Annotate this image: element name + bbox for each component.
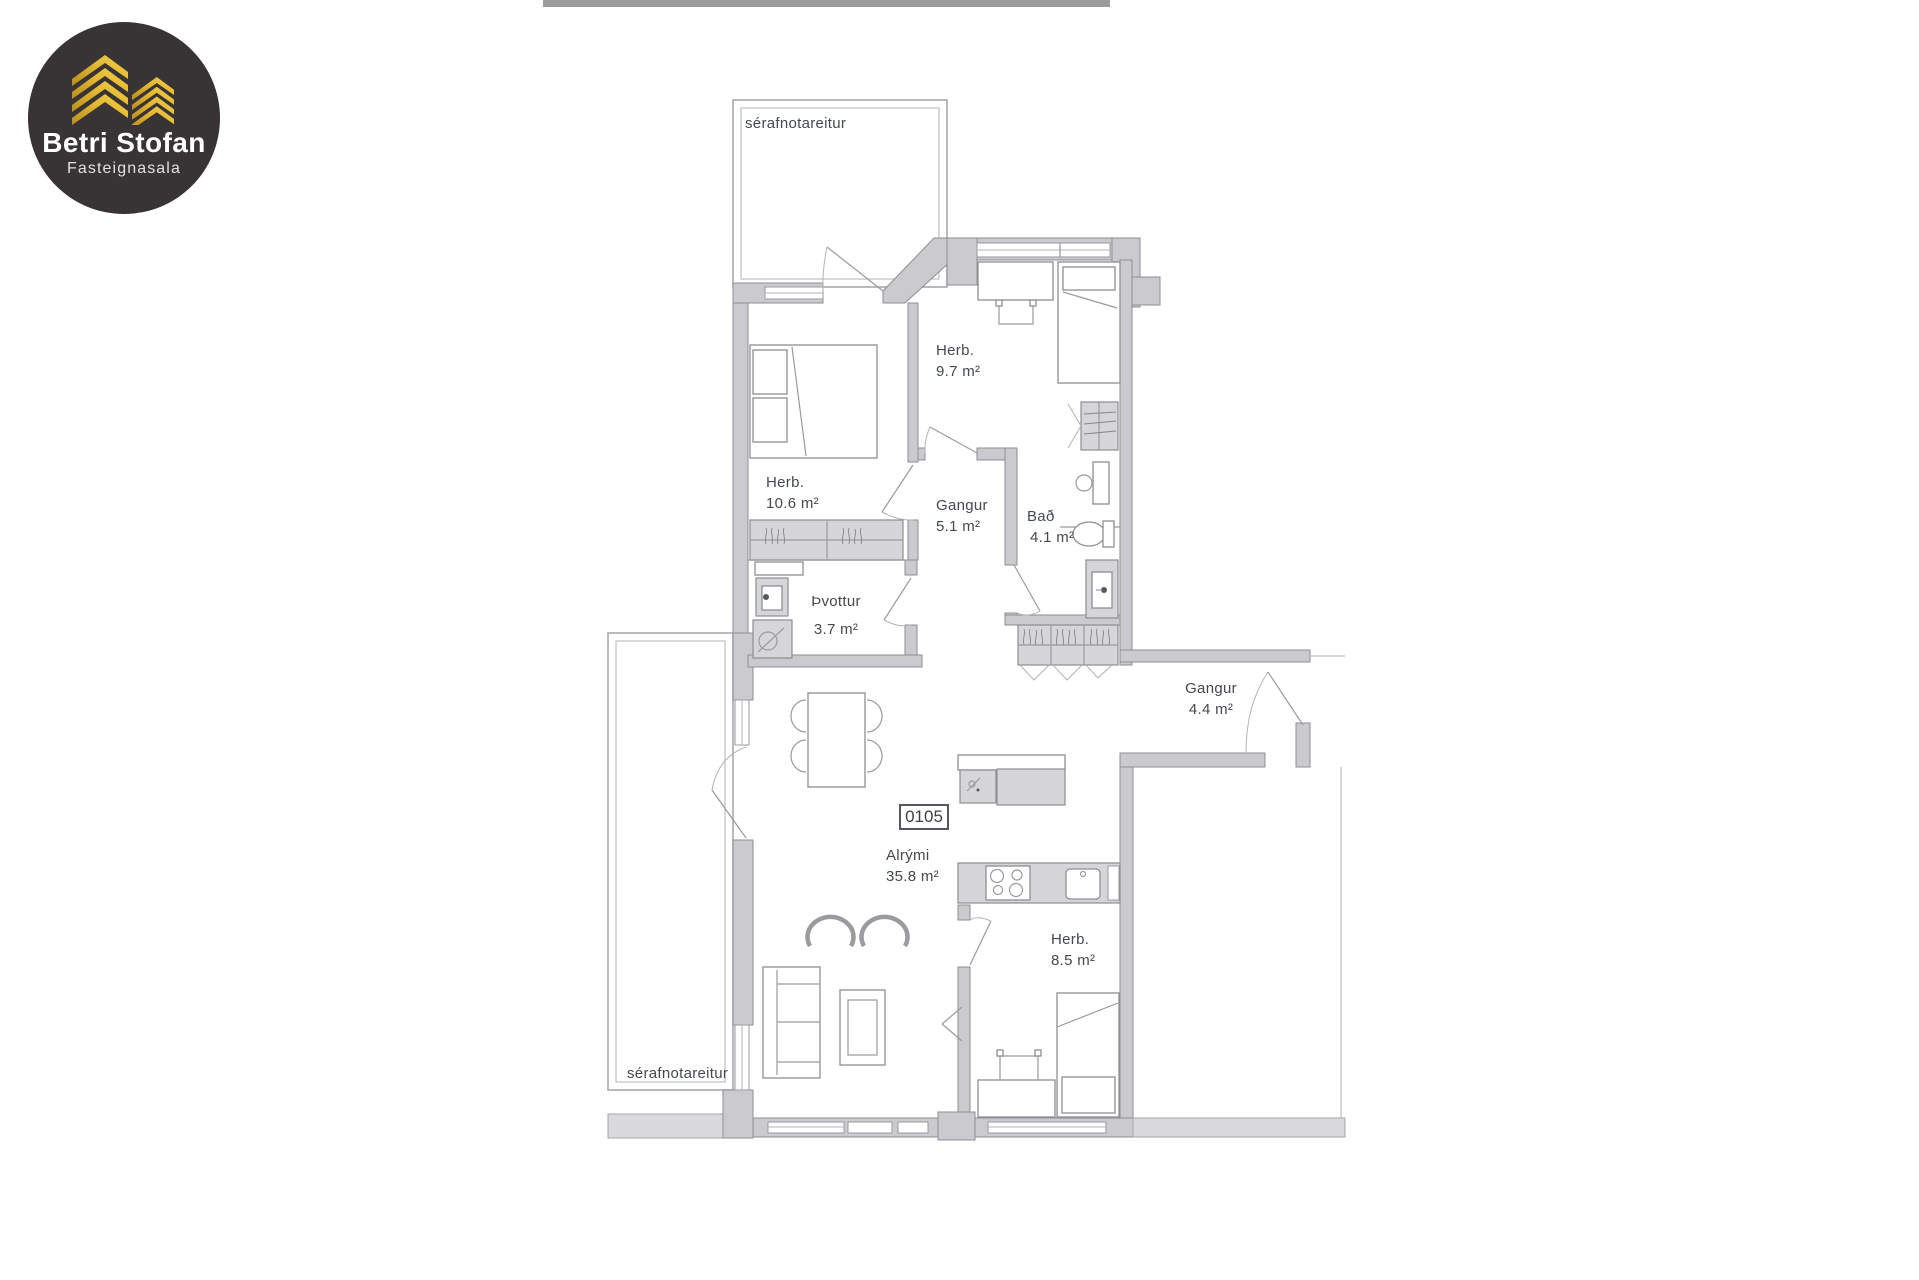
window-alrymi-south: [768, 1122, 928, 1133]
window-bedroom1: [765, 287, 823, 299]
double-bed: [750, 345, 877, 458]
closet-herb97: [1068, 402, 1118, 450]
room-label-alrymi: Alrými 35.8 m²: [886, 845, 939, 887]
dining-table: [808, 693, 865, 787]
single-bed-herb85: [1057, 993, 1119, 1117]
single-bed-herb97: [1058, 262, 1120, 383]
unit-number-badge: 0105: [899, 804, 949, 830]
room-label-serafnotareitur-top: sérafnotareitur: [745, 113, 846, 134]
sofa: [763, 967, 820, 1078]
room-label-herb-8-5: Herb. 8.5 m²: [1051, 929, 1095, 971]
door-thvottur: [884, 578, 911, 626]
window-left-wall-lower: [735, 1025, 749, 1090]
room-label-herb-9-7: Herb. 9.7 m²: [936, 340, 980, 382]
room-label-gangur-4-4: Gangur 4.4 m²: [1178, 678, 1244, 720]
door-herb97: [925, 427, 977, 453]
page: Betri Stofan Fasteignasala sérafnotareit…: [0, 0, 1919, 1280]
kitchen-counter: [958, 863, 1120, 903]
bathroom-sink: [1076, 462, 1109, 504]
room-label-serafnotareitur-bottom: sérafnotareitur: [627, 1063, 728, 1084]
window-herb85-south: [988, 1122, 1106, 1133]
furniture: [750, 262, 1120, 1117]
kitchen-island: [958, 755, 1065, 805]
top-bar: [543, 0, 1110, 7]
laundry-sink: [753, 620, 792, 658]
wardrobe-bedroom1: [750, 520, 903, 575]
door-bedroom1: [882, 465, 913, 520]
room-label-gangur-5-1: Gangur 5.1 m²: [936, 495, 988, 537]
armchairs: [808, 917, 908, 946]
buildings-icon: [72, 55, 176, 125]
neighbour-slab: [1133, 1118, 1345, 1137]
floor-plan-svg: [0, 0, 1919, 1280]
balcony-slab: [608, 1114, 729, 1138]
room-label-bad: Bað 4.1 m²: [1027, 506, 1074, 548]
room-label-herb-10-6: Herb. 10.6 m²: [766, 472, 819, 514]
door-bathroom: [1014, 565, 1040, 615]
desk-herb85: [978, 1050, 1055, 1117]
toilet: [1073, 521, 1114, 547]
logo-tagline-text: Fasteignasala: [67, 160, 181, 178]
door-entrance: [1246, 672, 1303, 752]
room-label-thvottur: Þvottur 3.7 m²: [800, 591, 872, 640]
agency-logo: Betri Stofan Fasteignasala: [28, 22, 220, 214]
logo-brand-text: Betri Stofan: [42, 127, 205, 159]
tech-cabinet: [1086, 560, 1118, 618]
coffee-table: [840, 990, 885, 1065]
washing-machine: [756, 578, 788, 616]
desk-herb97: [978, 262, 1053, 324]
wardrobe-hall: [1018, 625, 1118, 680]
window-left-wall-upper: [735, 700, 749, 745]
window-herb97: [977, 243, 1110, 257]
